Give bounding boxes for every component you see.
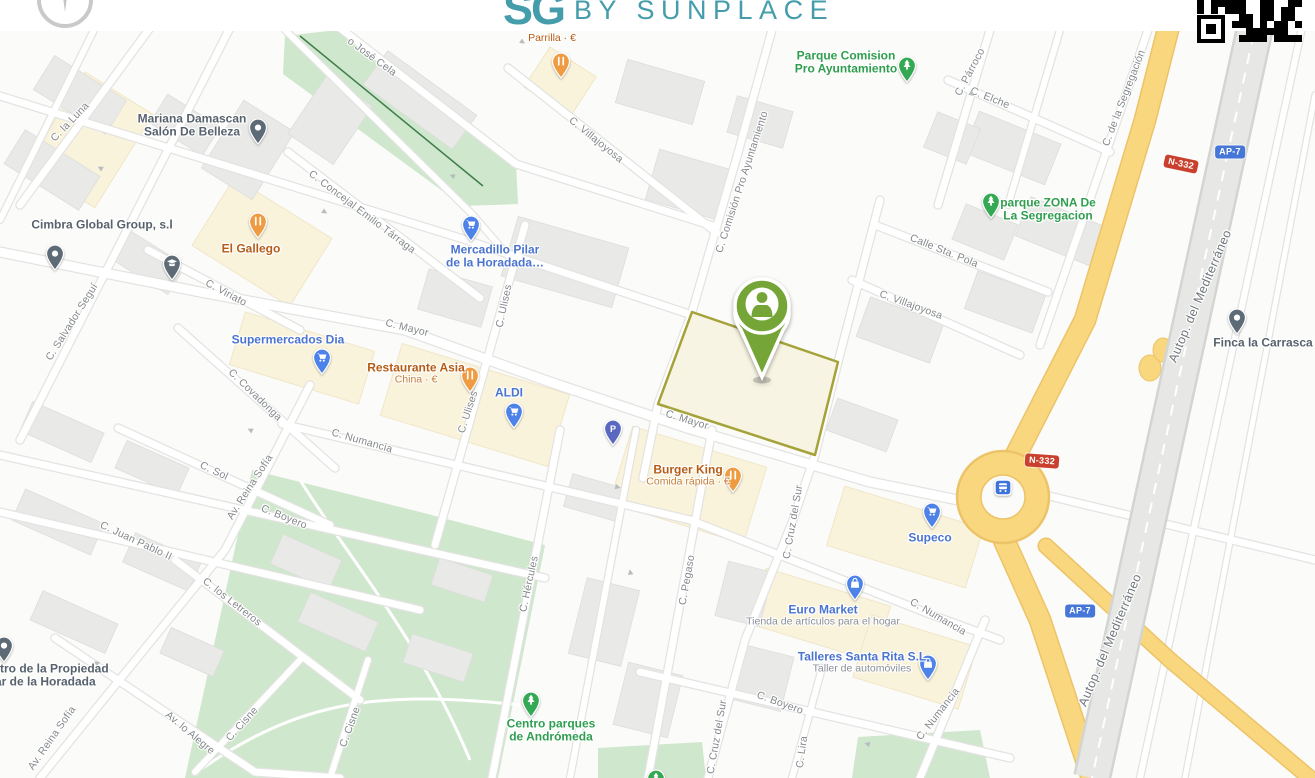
map-viewport[interactable]: o José CelaC. la LunaC. Concejal Emilio … (0, 0, 1315, 778)
header-bar: SG BY SUNPLACE (0, 0, 1315, 31)
compass-logo-icon (34, 0, 96, 32)
map-canvas[interactable] (0, 0, 1315, 778)
qr-code (1197, 0, 1303, 43)
brand-logo-mark: SG (503, 0, 564, 35)
brand-title: BY SUNPLACE (574, 0, 834, 26)
roundabout (957, 451, 1049, 543)
